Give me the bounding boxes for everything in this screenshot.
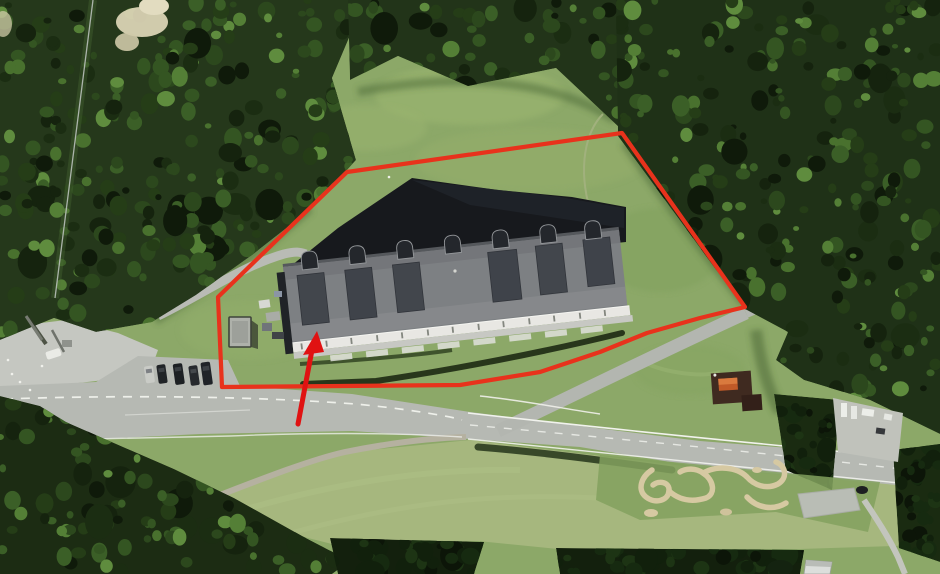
tree-blob — [50, 91, 63, 106]
tree-blob — [235, 62, 249, 79]
tree-blob — [183, 43, 198, 55]
tree-blob — [73, 462, 92, 485]
tree-blob — [219, 143, 242, 162]
tree-blob — [100, 559, 113, 572]
tree-blob — [465, 53, 476, 61]
tree-blob — [44, 134, 55, 144]
tree-blob — [886, 71, 897, 82]
tree-blob — [865, 38, 879, 53]
tree-blob — [778, 95, 784, 102]
tree-blob — [57, 547, 72, 566]
tree-blob — [579, 18, 586, 24]
tree-blob — [92, 93, 100, 100]
tree-blob — [50, 147, 61, 161]
tree-blob — [293, 69, 299, 74]
tree-blob — [904, 345, 914, 356]
tree-blob — [838, 268, 851, 281]
aerial-image — [0, 0, 940, 574]
tree-blob — [799, 206, 808, 213]
tree-blob — [276, 33, 282, 39]
tree-blob — [775, 88, 782, 94]
tree-blob — [881, 340, 894, 351]
tree-blob — [166, 52, 179, 65]
tree-blob — [808, 156, 826, 172]
tree-blob — [892, 381, 909, 396]
tree-blob — [82, 177, 92, 187]
tree-blob — [780, 357, 787, 363]
tree-blob — [74, 264, 89, 277]
tree-blob — [459, 64, 470, 75]
tree-blob — [858, 221, 878, 242]
tree-blob — [821, 24, 839, 42]
tree-blob — [766, 247, 775, 254]
tree-blob — [689, 108, 701, 119]
tree-blob — [825, 95, 842, 115]
tree-blob — [69, 304, 86, 322]
tree-blob — [830, 118, 836, 124]
tree-blob — [826, 422, 832, 428]
tree-blob — [750, 551, 761, 562]
tree-blob — [892, 346, 903, 359]
tree-blob — [761, 198, 767, 204]
tree-blob — [639, 24, 653, 35]
tree-blob — [917, 53, 923, 61]
tree-blob — [310, 560, 321, 573]
tree-blob — [888, 256, 903, 271]
tree-blob — [111, 157, 123, 169]
tree-blob — [852, 204, 859, 210]
tree-blob — [725, 45, 734, 53]
tree-blob — [18, 163, 36, 181]
tree-blob — [144, 535, 152, 542]
tree-blob — [593, 7, 606, 20]
tree-blob — [570, 4, 577, 12]
tree-blob — [143, 206, 154, 220]
tree-blob — [93, 194, 105, 209]
tree-blob — [146, 239, 160, 251]
tree-blob — [864, 337, 875, 348]
tree-blob — [749, 277, 766, 297]
tree-blob — [51, 187, 62, 197]
tree-blob — [909, 1, 918, 11]
tree-blob — [213, 242, 230, 255]
tree-blob — [882, 24, 893, 35]
tree-blob — [233, 13, 246, 26]
tree-blob — [298, 46, 312, 58]
tree-blob — [606, 34, 618, 44]
tree-blob — [130, 111, 139, 120]
tree-blob — [850, 254, 857, 259]
tree-blob — [275, 172, 283, 180]
tree-blob — [58, 78, 66, 84]
tree-blob — [837, 352, 850, 366]
tree-blob — [735, 202, 746, 211]
tree-blob — [780, 107, 790, 120]
tree-blob — [122, 187, 129, 193]
tree-blob — [67, 511, 74, 519]
tree-blob — [890, 240, 904, 256]
tree-blob — [926, 369, 934, 376]
tree-blob — [850, 136, 864, 153]
tree-blob — [769, 191, 785, 210]
tree-blob — [792, 41, 807, 56]
tree-blob — [472, 34, 485, 47]
tree-blob — [543, 18, 561, 33]
tree-blob — [276, 88, 286, 99]
tree-blob — [94, 544, 105, 554]
tree-blob — [870, 354, 881, 367]
tree-blob — [85, 504, 113, 540]
tree-blob — [36, 493, 54, 513]
tree-blob — [904, 47, 910, 52]
tree-blob — [223, 534, 235, 550]
tree-blob — [430, 5, 443, 20]
tree-blob — [173, 254, 190, 268]
camper-van — [841, 403, 847, 417]
tree-blob — [485, 5, 498, 21]
roof-vent — [453, 269, 456, 272]
tree-blob — [298, 11, 306, 17]
tree-blob — [666, 557, 675, 568]
tree-blob — [163, 206, 187, 236]
tree-blob — [5, 2, 12, 8]
tree-blob — [740, 132, 747, 140]
tree-blob — [22, 199, 33, 209]
tree-blob — [746, 267, 757, 280]
tree-blob — [383, 45, 391, 52]
tree-blob — [786, 320, 809, 337]
tree-blob — [863, 152, 877, 164]
tree-blob — [301, 193, 311, 201]
tree-blob — [902, 129, 917, 141]
tree-blob — [123, 305, 133, 314]
tree-blob — [97, 258, 117, 276]
tree-blob — [187, 173, 196, 181]
tree-blob — [461, 548, 480, 565]
tree-blob — [781, 262, 795, 272]
tree-blob — [791, 403, 800, 411]
tree-blob — [803, 62, 813, 71]
tree-blob — [920, 269, 927, 275]
tree-blob — [205, 123, 212, 128]
tree-blob — [89, 481, 105, 498]
tree-blob — [57, 526, 68, 536]
tree-blob — [737, 232, 745, 239]
tree-blob — [283, 201, 293, 212]
tree-blob — [750, 163, 758, 171]
tree-blob — [821, 254, 834, 266]
tree-blob — [758, 223, 778, 244]
tree-blob — [822, 241, 833, 254]
tree-blob — [915, 220, 932, 239]
tree-blob — [911, 495, 920, 502]
tree-blob — [624, 1, 642, 21]
tree-blob — [870, 28, 877, 36]
tree-blob — [902, 529, 916, 542]
tree-blob — [254, 135, 263, 146]
tree-blob — [888, 172, 900, 187]
tree-blob — [880, 365, 888, 371]
tree-blob — [28, 241, 40, 251]
tree-blob — [851, 193, 862, 205]
tree-blob — [230, 514, 246, 533]
tree-blob — [252, 230, 262, 238]
tree-blob — [751, 90, 768, 111]
tree-blob — [4, 491, 21, 510]
tree-blob — [36, 156, 53, 172]
tree-blob — [599, 72, 610, 80]
tree-blob — [215, 190, 231, 208]
tree-blob — [628, 44, 641, 56]
tree-blob — [807, 347, 815, 354]
tree-blob — [75, 169, 86, 178]
tree-blob — [264, 13, 272, 22]
tree-blob — [896, 18, 906, 25]
tree-blob — [370, 12, 398, 45]
tree-blob — [103, 470, 112, 478]
tree-blob — [776, 15, 787, 24]
tree-blob — [854, 64, 871, 80]
tree-blob — [817, 438, 837, 463]
tree-blob — [449, 72, 457, 79]
tree-blob — [40, 513, 49, 524]
tree-blob — [350, 45, 365, 63]
tree-blob — [907, 466, 915, 475]
tree-blob — [5, 61, 16, 74]
tree-blob — [343, 156, 353, 163]
tree-blob — [237, 224, 243, 231]
tree-blob — [359, 540, 368, 547]
tree-blob — [181, 557, 193, 568]
tree-blob — [334, 9, 345, 22]
tree-blob — [832, 291, 843, 304]
tree-blob — [163, 237, 176, 251]
tree-blob — [467, 26, 477, 33]
tree-blob — [229, 110, 245, 127]
camper-van — [851, 406, 857, 419]
tree-blob — [917, 512, 930, 526]
tree-blob — [67, 428, 76, 435]
tree-blob — [605, 552, 615, 565]
tree-blob — [803, 1, 815, 14]
tree-blob — [141, 93, 159, 114]
tree-blob — [7, 526, 18, 534]
satellite-map-view — [0, 0, 940, 574]
tree-blob — [907, 512, 916, 520]
tree-blob — [74, 25, 85, 34]
tree-blob — [672, 49, 680, 58]
tree-blob — [899, 99, 908, 107]
tree-blob — [680, 128, 692, 142]
tree-blob — [885, 185, 896, 198]
tree-blob — [57, 160, 65, 167]
tree-blob — [185, 135, 198, 148]
tree-blob — [704, 36, 714, 47]
tree-blob — [190, 252, 207, 273]
tree-blob — [861, 181, 874, 191]
tree-blob — [230, 2, 237, 8]
tree-blob — [250, 552, 257, 560]
tree-blob — [14, 507, 27, 520]
tree-blob — [754, 23, 763, 31]
tree-blob — [736, 169, 750, 180]
tree-blob — [368, 1, 378, 13]
tree-blob — [797, 167, 813, 181]
tree-blob — [861, 93, 871, 101]
tree-blob — [303, 148, 318, 166]
tree-blob — [90, 52, 97, 60]
tree-blob — [250, 222, 259, 231]
tree-blob — [134, 454, 141, 463]
tree-blob — [57, 298, 68, 310]
tree-blob — [113, 516, 123, 524]
tree-blob — [184, 192, 202, 212]
tree-blob — [212, 529, 223, 538]
tree-blob — [106, 100, 123, 115]
tree-blob — [799, 457, 816, 469]
tree-blob — [7, 287, 24, 304]
tree-blob — [152, 530, 162, 541]
tree-blob — [911, 243, 919, 251]
tree-blob — [771, 283, 786, 301]
tree-blob — [245, 155, 258, 168]
tree-blob — [224, 30, 235, 44]
tree-blob — [928, 492, 935, 499]
tree-blob — [838, 67, 852, 81]
tree-blob — [417, 542, 433, 562]
tree-blob — [222, 172, 239, 191]
tree-blob — [640, 62, 650, 71]
tree-blob — [71, 447, 82, 456]
tree-blob — [672, 156, 678, 163]
tree-blob — [137, 58, 150, 75]
tree-blob — [818, 420, 827, 428]
tree-blob — [51, 58, 61, 69]
tree-blob — [426, 53, 435, 62]
tree-blob — [157, 36, 165, 44]
tree-blob — [47, 36, 58, 47]
tree-blob — [539, 56, 550, 66]
tree-blob — [624, 34, 632, 43]
tree-blob — [591, 41, 606, 59]
tree-blob — [917, 120, 934, 134]
tree-blob — [908, 506, 914, 512]
tree-blob — [909, 311, 917, 322]
tree-blob — [118, 539, 132, 556]
tree-blob — [854, 99, 863, 108]
tree-blob — [563, 555, 571, 562]
tree-blob — [790, 344, 802, 353]
tree-blob — [218, 66, 235, 85]
tree-blob — [721, 139, 747, 165]
tree-blob — [124, 471, 135, 484]
tree-blob — [173, 529, 187, 546]
tree-blob — [273, 555, 285, 565]
tree-blob — [918, 461, 925, 469]
tree-blob — [420, 3, 430, 12]
tree-blob — [860, 201, 878, 223]
tree-blob — [445, 553, 458, 564]
tree-blob — [833, 256, 846, 270]
tree-blob — [747, 52, 768, 71]
tree-blob — [157, 490, 167, 501]
tree-blob — [703, 88, 719, 100]
tree-blob — [306, 17, 322, 31]
tree-blob — [697, 75, 704, 81]
tree-blob — [766, 37, 784, 59]
tree-blob — [313, 132, 330, 147]
white-dot — [388, 176, 391, 179]
tree-blob — [430, 23, 447, 38]
tree-blob — [793, 226, 799, 231]
tree-blob — [720, 217, 733, 232]
tree-blob — [99, 229, 114, 245]
tree-blob — [896, 476, 907, 490]
tree-blob — [137, 474, 152, 489]
tree-blob — [110, 77, 124, 88]
tree-blob — [891, 323, 920, 349]
tree-blob — [672, 95, 690, 116]
tree-blob — [768, 174, 781, 184]
tree-blob — [306, 8, 315, 17]
tree-blob — [180, 233, 195, 250]
tree-blob — [146, 176, 158, 189]
tree-blob — [926, 325, 934, 331]
tree-blob — [223, 500, 234, 511]
tree-blob — [206, 487, 213, 495]
tree-blob — [159, 71, 173, 88]
tree-blob — [269, 49, 285, 63]
tree-blob — [891, 302, 905, 320]
tree-blob — [19, 429, 35, 445]
tree-blob — [282, 137, 299, 155]
tree-blob — [69, 10, 85, 22]
tree-blob — [157, 91, 175, 106]
tree-blob — [205, 77, 217, 87]
tree-blob — [667, 49, 674, 55]
tree-blob — [854, 323, 863, 329]
tree-blob — [40, 107, 55, 118]
tree-blob — [732, 269, 746, 280]
tree-blob — [865, 279, 872, 286]
tree-blob — [851, 374, 868, 395]
tree-blob — [776, 26, 789, 35]
tree-blob — [834, 198, 841, 207]
tree-blob — [658, 69, 669, 77]
tree-blob — [904, 159, 921, 179]
tree-blob — [637, 95, 652, 113]
tree-blob — [713, 175, 728, 188]
tree-blob — [722, 202, 733, 212]
tree-blob — [185, 89, 200, 102]
tree-blob — [244, 132, 253, 139]
tree-blob — [472, 11, 486, 28]
tree-blob — [16, 24, 36, 43]
tree-blob — [139, 273, 146, 281]
tree-blob — [247, 532, 259, 546]
tree-blob — [896, 5, 906, 15]
tree-blob — [898, 285, 911, 299]
dark-car — [856, 486, 868, 494]
tree-blob — [112, 242, 125, 254]
tree-blob — [551, 13, 558, 19]
tree-blob — [166, 164, 179, 175]
tree-blob — [4, 130, 15, 144]
dark-van — [876, 427, 886, 434]
tree-blob — [96, 166, 103, 173]
tree-blob — [809, 441, 817, 449]
tree-blob — [55, 122, 66, 134]
